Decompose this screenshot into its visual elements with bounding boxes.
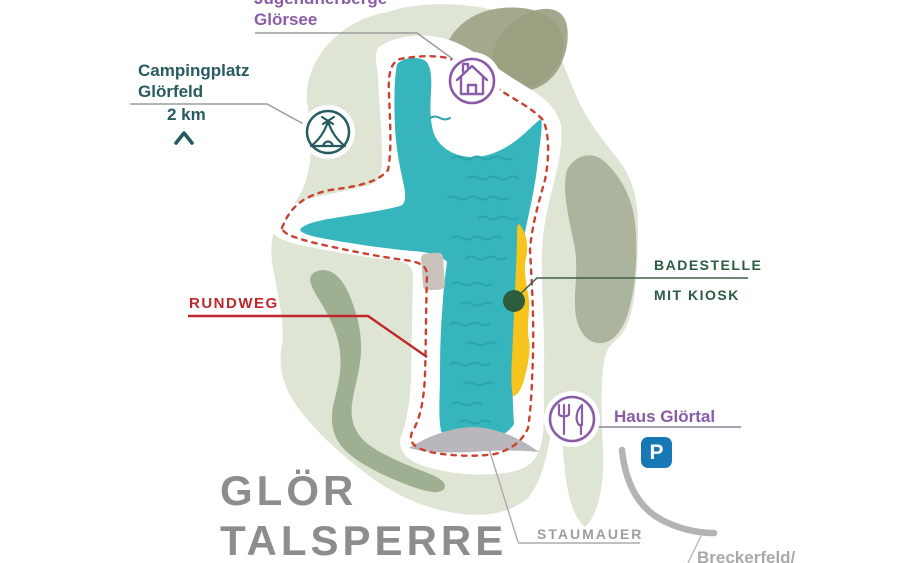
swim-spot-label: BADESTELLE MIT KIOSK: [654, 250, 762, 310]
campsite-distance: 2 km: [167, 105, 206, 125]
swim-spot-line1: BADESTELLE: [654, 250, 762, 280]
road-destination-label: Breckerfeld/: [697, 548, 795, 563]
campsite-line2: Glörfeld: [138, 81, 249, 102]
loop-trail-label: RUNDWEG: [189, 295, 279, 312]
tent-icon: [301, 105, 355, 159]
youth-hostel-label: Jugendherberge Glörsee: [254, 0, 387, 30]
map-title: GLÖR TALSPERRE: [220, 466, 507, 563]
map-canvas: Jugendherberge Glörsee Campingplatz Glör…: [0, 0, 900, 563]
dam-label: STAUMAUER: [537, 526, 643, 542]
campsite-leader-line: [130, 104, 309, 127]
chevron-up-icon: [176, 133, 192, 143]
campsite-line1: Campingplatz: [138, 60, 249, 81]
swim-spot-dot: [503, 290, 525, 312]
building-marker: [421, 252, 446, 290]
house-icon: [443, 52, 501, 110]
campsite-label: Campingplatz Glörfeld: [138, 60, 249, 102]
parking-icon: P: [641, 437, 672, 468]
youth-hostel-line1: Jugendherberge: [254, 0, 387, 9]
restaurant-label: Haus Glörtal: [614, 407, 715, 427]
youth-hostel-line2: Glörsee: [254, 9, 387, 30]
map-title-line2: TALSPERRE: [220, 516, 507, 563]
swim-spot-line2: MIT KIOSK: [654, 280, 762, 310]
fork-knife-icon: [544, 391, 600, 447]
map-title-line1: GLÖR: [220, 466, 507, 516]
